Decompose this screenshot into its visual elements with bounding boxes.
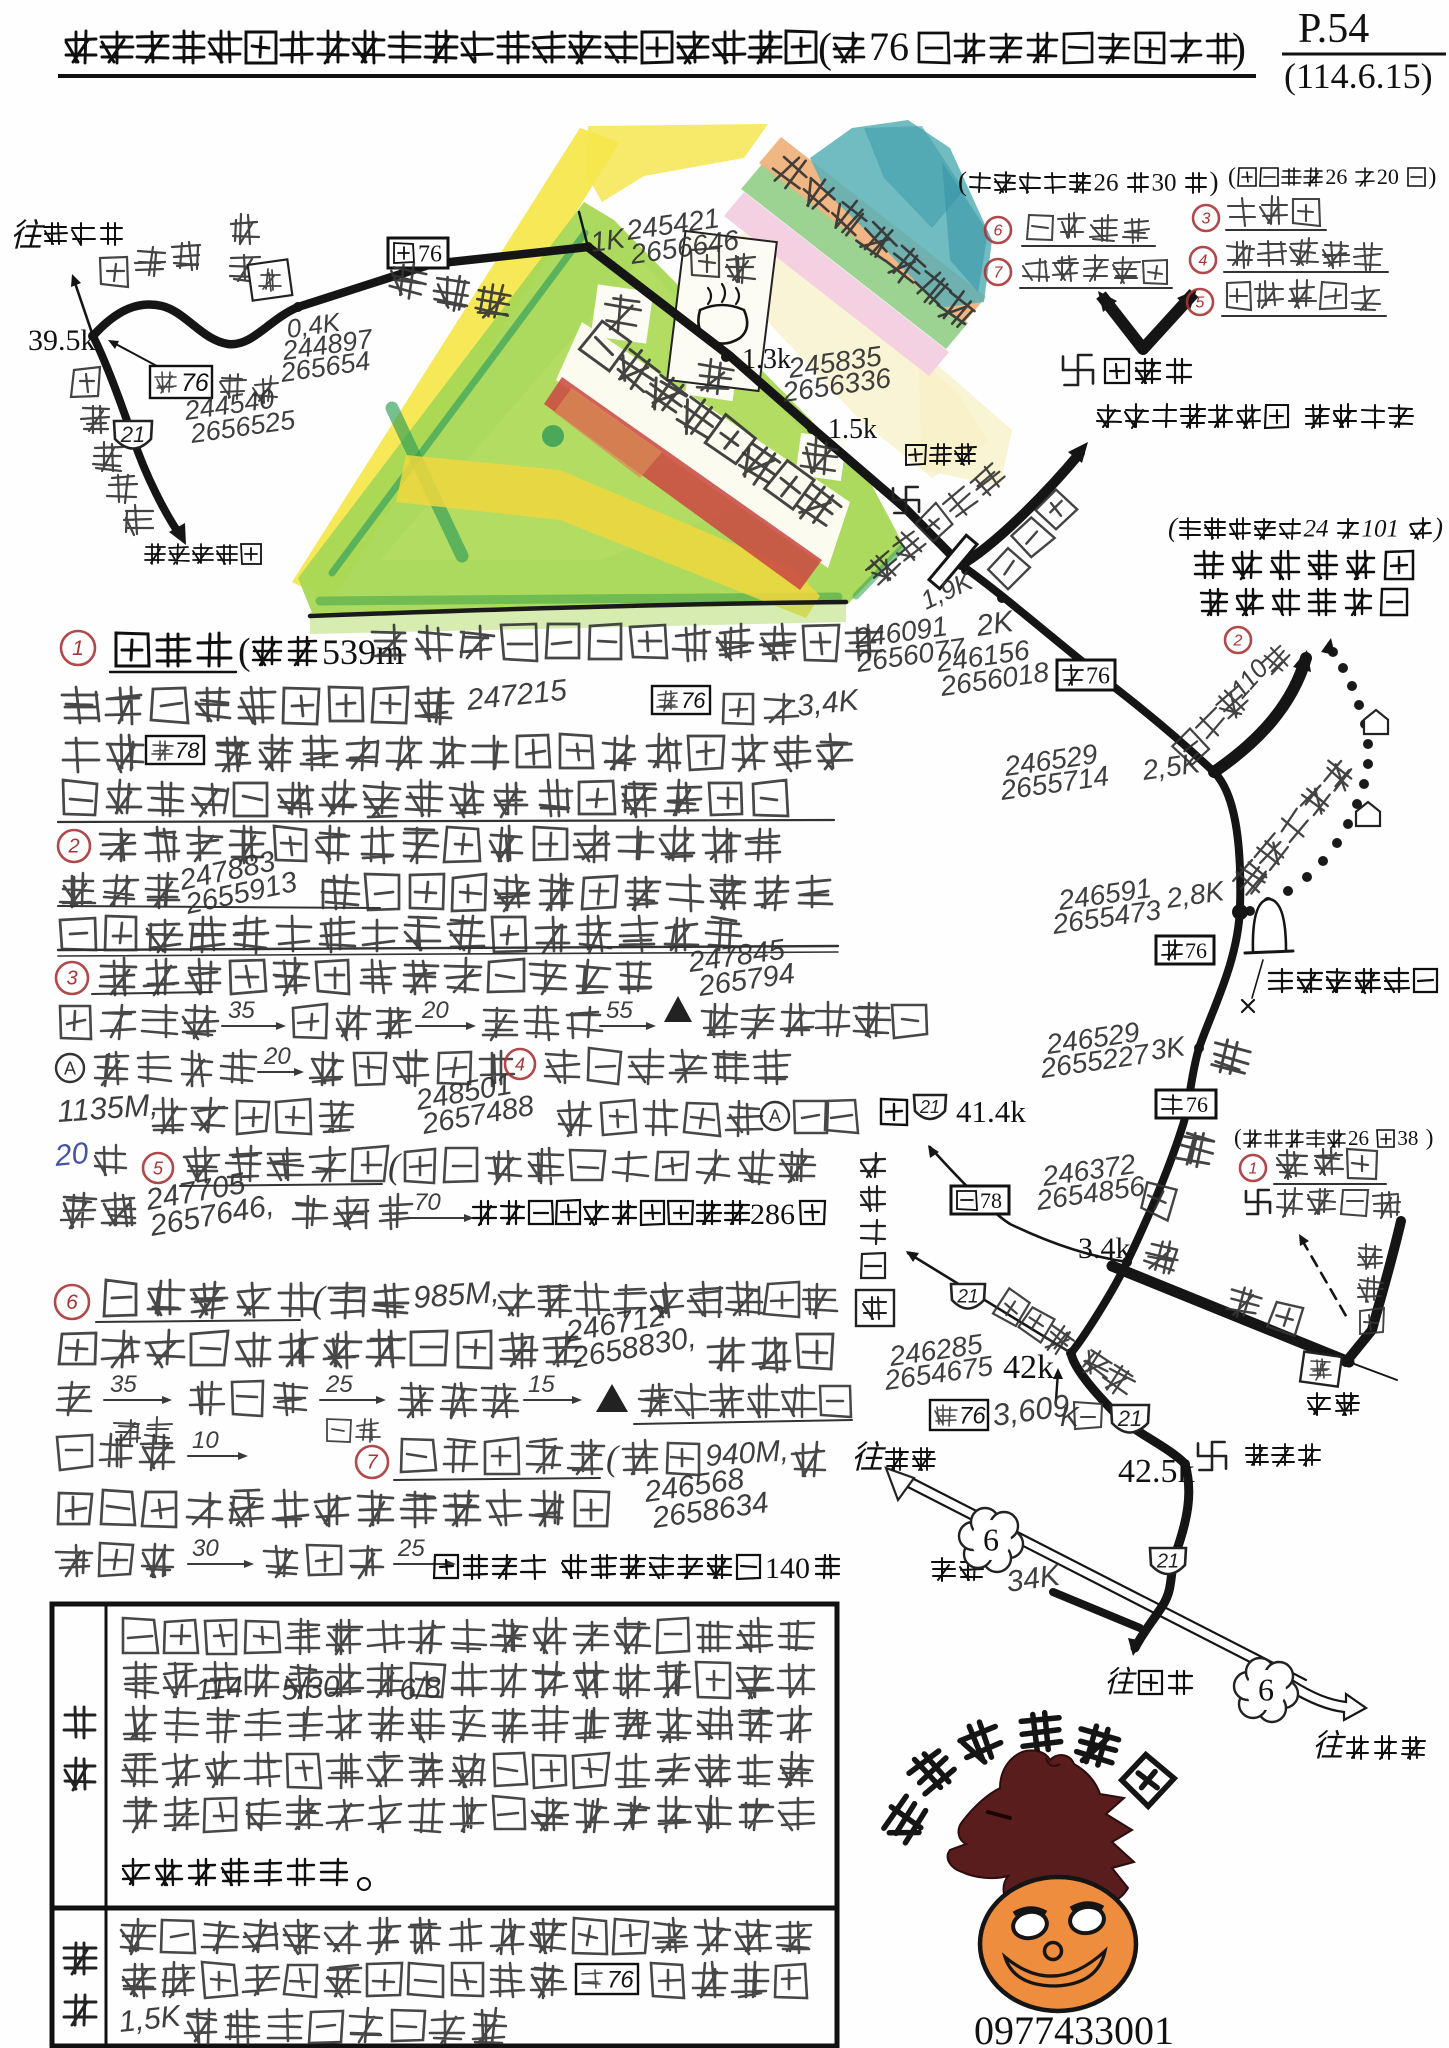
svg-text:3K: 3K xyxy=(1149,1030,1189,1066)
svg-text:1K: 1K xyxy=(589,222,629,258)
svg-text:70: 70 xyxy=(414,1189,441,1216)
svg-text:20: 20 xyxy=(52,1137,90,1173)
svg-text:24: 24 xyxy=(1304,516,1329,543)
svg-text:20: 20 xyxy=(421,997,449,1024)
svg-text:26: 26 xyxy=(1348,1126,1369,1150)
svg-text:78: 78 xyxy=(980,1188,1002,1213)
svg-text:(114.6.15): (114.6.15) xyxy=(1284,56,1433,96)
svg-text:76: 76 xyxy=(681,688,706,713)
svg-text:6: 6 xyxy=(1258,1671,1274,1707)
svg-text:6/8: 6/8 xyxy=(398,1671,442,1707)
svg-text:往: 往 xyxy=(1104,1666,1137,1699)
svg-text:35: 35 xyxy=(110,1371,137,1398)
svg-text:7: 7 xyxy=(366,1452,378,1474)
svg-text:20: 20 xyxy=(263,1043,291,1070)
svg-text:39.5k: 39.5k xyxy=(28,324,96,357)
svg-text:5/30: 5/30 xyxy=(280,1670,341,1707)
svg-text:15: 15 xyxy=(528,1371,555,1398)
svg-text:55: 55 xyxy=(606,997,633,1024)
svg-text:38: 38 xyxy=(1397,1126,1418,1150)
svg-text:A: A xyxy=(769,1106,781,1126)
svg-text:6: 6 xyxy=(994,222,1003,239)
svg-text:): ) xyxy=(1426,1125,1434,1150)
svg-text:2: 2 xyxy=(1233,632,1243,649)
svg-text:1,5K: 1,5K xyxy=(117,1999,184,2038)
svg-text:140: 140 xyxy=(765,1552,810,1585)
svg-text:3: 3 xyxy=(66,968,77,990)
svg-text:1.3k: 1.3k xyxy=(742,344,791,375)
svg-text:1.5k: 1.5k xyxy=(828,414,877,445)
svg-text:20: 20 xyxy=(1377,164,1399,189)
svg-text:K: K xyxy=(1060,1401,1080,1432)
svg-text:5: 5 xyxy=(1196,294,1205,311)
svg-text:76: 76 xyxy=(418,241,442,267)
svg-text:286: 286 xyxy=(750,1198,795,1231)
svg-text:985M,: 985M, xyxy=(412,1274,500,1315)
svg-text:6: 6 xyxy=(66,1291,78,1314)
svg-text:7: 7 xyxy=(994,264,1004,281)
svg-text:42k: 42k xyxy=(1003,1349,1054,1386)
svg-text:35: 35 xyxy=(228,997,255,1024)
svg-text:往: 往 xyxy=(1312,1728,1346,1763)
svg-text:21: 21 xyxy=(919,1097,940,1117)
svg-text:): ) xyxy=(1232,26,1246,72)
svg-text:21: 21 xyxy=(956,1286,978,1307)
svg-text:(: ( xyxy=(958,167,967,197)
svg-text:30: 30 xyxy=(1152,170,1177,197)
svg-text:76: 76 xyxy=(1086,663,1110,689)
svg-text:3.4k: 3.4k xyxy=(1078,1232,1131,1265)
svg-text:30: 30 xyxy=(192,1535,219,1562)
svg-text:4: 4 xyxy=(515,1054,525,1074)
svg-text:3: 3 xyxy=(1202,210,1211,227)
svg-text:6: 6 xyxy=(983,1521,999,1557)
svg-text:): ) xyxy=(1210,167,1219,197)
svg-text:10: 10 xyxy=(192,1427,219,1454)
svg-text:(: ( xyxy=(606,1438,620,1478)
svg-text:1135M,: 1135M, xyxy=(56,1087,159,1129)
svg-text:(: ( xyxy=(1234,1125,1242,1150)
svg-text:21: 21 xyxy=(1156,1551,1179,1573)
svg-text:21: 21 xyxy=(1117,1406,1142,1431)
svg-text:1: 1 xyxy=(1249,1160,1258,1177)
svg-text:101: 101 xyxy=(1362,516,1400,543)
svg-text:3,4K: 3,4K xyxy=(795,683,862,722)
svg-text:(: ( xyxy=(1228,164,1236,190)
svg-text:A: A xyxy=(64,1058,76,1078)
svg-text:): ) xyxy=(1428,164,1436,190)
svg-text:(: ( xyxy=(388,1146,402,1186)
svg-text:往: 往 xyxy=(10,217,46,253)
svg-text:78: 78 xyxy=(175,738,200,763)
svg-text:25: 25 xyxy=(325,1371,353,1398)
svg-text:76: 76 xyxy=(1185,938,1207,963)
svg-text:): ) xyxy=(1432,513,1443,543)
svg-text:(: ( xyxy=(818,26,832,72)
svg-text:0977433001: 0977433001 xyxy=(974,2008,1174,2048)
svg-text:P.54: P.54 xyxy=(1298,6,1369,52)
svg-text:26: 26 xyxy=(1094,170,1119,197)
svg-text:76: 76 xyxy=(959,1402,986,1429)
svg-text:76: 76 xyxy=(607,1966,634,1993)
svg-text:76: 76 xyxy=(1186,1092,1208,1117)
svg-text:42.5k: 42.5k xyxy=(1118,1453,1195,1490)
svg-text:4: 4 xyxy=(1199,252,1208,269)
svg-text:26: 26 xyxy=(1325,164,1347,189)
svg-text:2: 2 xyxy=(67,836,79,858)
svg-text:21: 21 xyxy=(120,422,145,447)
svg-text:539m: 539m xyxy=(322,632,404,672)
svg-text:41.4k: 41.4k xyxy=(956,1094,1026,1129)
svg-text:25: 25 xyxy=(397,1535,425,1562)
svg-text:(: ( xyxy=(238,631,251,673)
svg-text:往: 往 xyxy=(851,1439,887,1475)
svg-text:114: 114 xyxy=(194,1671,244,1707)
svg-text:76: 76 xyxy=(869,24,909,69)
svg-text:5: 5 xyxy=(153,1158,164,1178)
svg-text:1: 1 xyxy=(72,637,84,660)
